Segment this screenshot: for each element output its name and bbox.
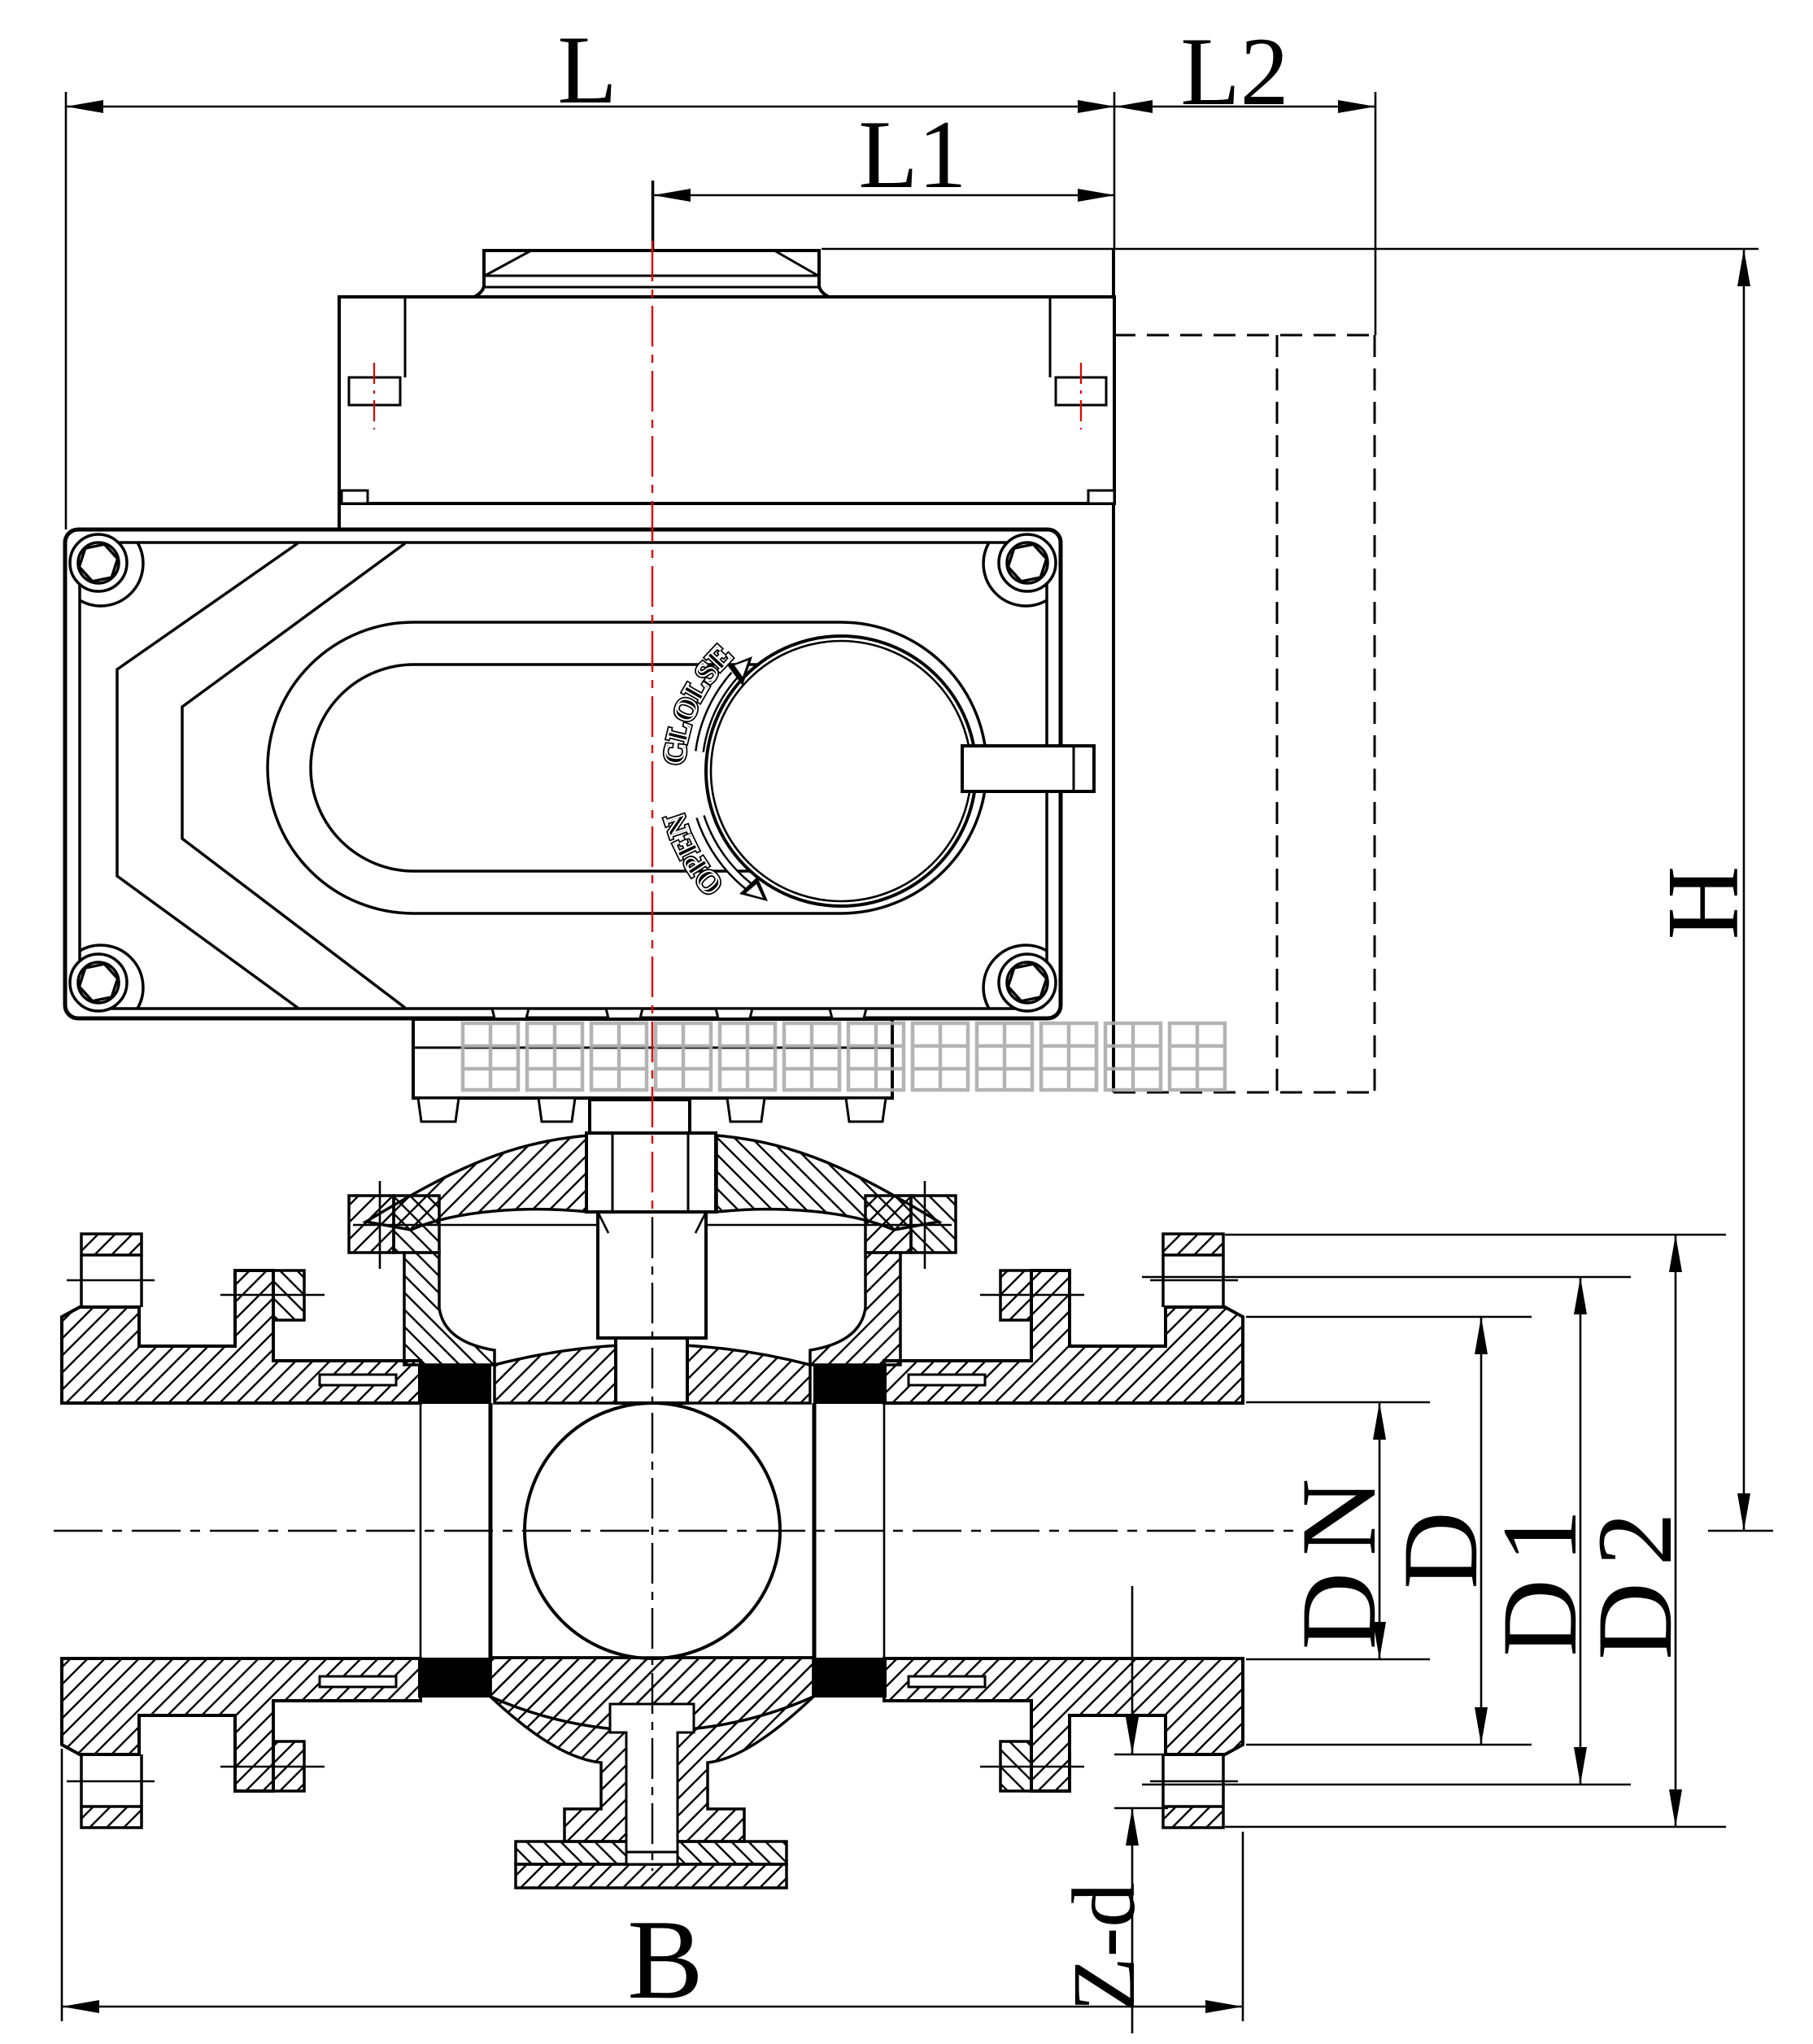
svg-text:B: B: [627, 1897, 703, 2023]
svg-text:D2: D2: [1575, 1496, 1694, 1659]
svg-text:L1: L1: [858, 100, 966, 208]
svg-text:L: L: [557, 15, 617, 124]
svg-text:H: H: [1647, 866, 1760, 940]
svg-text:Z-d: Z-d: [1054, 1883, 1153, 2012]
svg-text:L2: L2: [1180, 17, 1288, 125]
